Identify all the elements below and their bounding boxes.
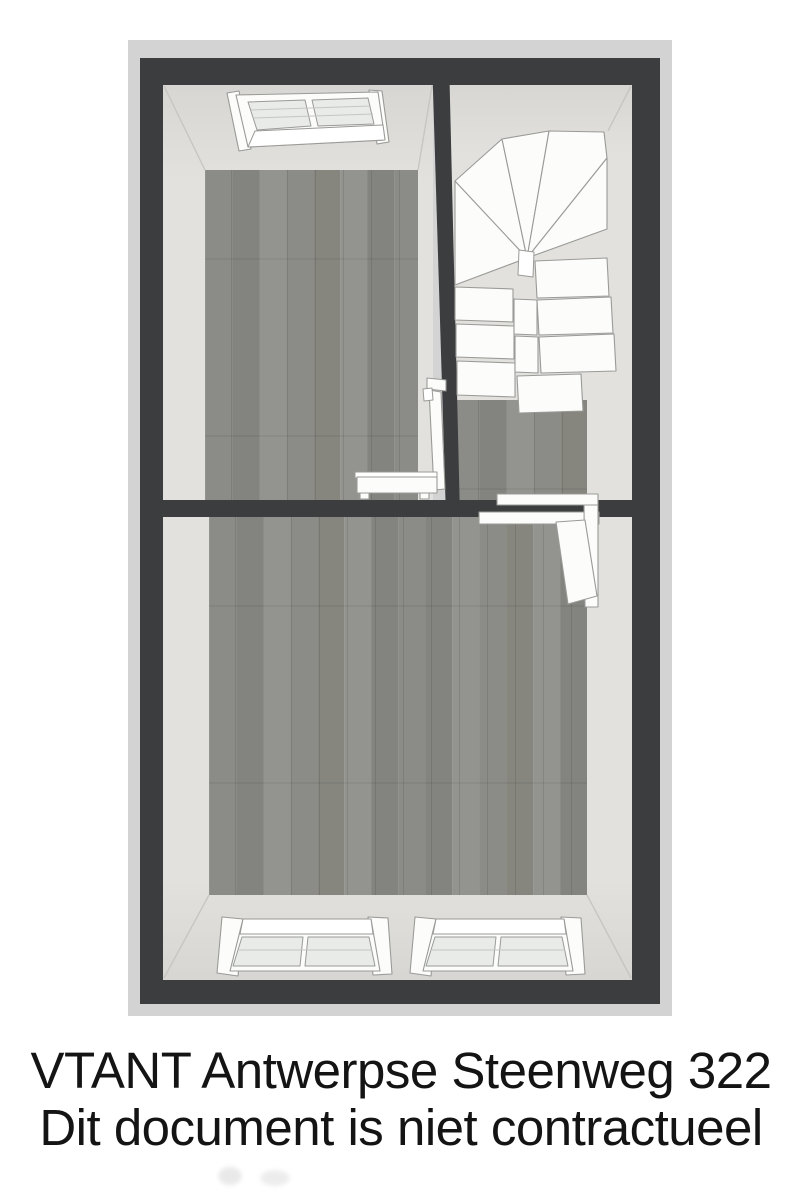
wall-outer-left bbox=[140, 58, 163, 1004]
footer-caption: VTANT Antwerpse Steenweg 322 Dit documen… bbox=[0, 1042, 802, 1156]
wall-outer-right bbox=[632, 58, 660, 1004]
watermark-smudge bbox=[205, 1156, 315, 1190]
wall-outer-bottom bbox=[140, 978, 660, 1004]
room-bottom-floor bbox=[209, 517, 587, 895]
room-top-left-floor bbox=[205, 170, 418, 505]
page: { "footer": { "line1": "VTANT Antwerpse … bbox=[0, 0, 802, 1200]
room-top-left bbox=[163, 85, 433, 510]
address-line: VTANT Antwerpse Steenweg 322 bbox=[0, 1042, 802, 1099]
room-bottom bbox=[163, 517, 632, 980]
stair-hall-floor bbox=[452, 400, 587, 505]
wall-outer-top bbox=[140, 58, 660, 85]
disclaimer-line: Dit document is niet contractueel bbox=[0, 1099, 802, 1156]
stair-hall bbox=[448, 85, 632, 510]
